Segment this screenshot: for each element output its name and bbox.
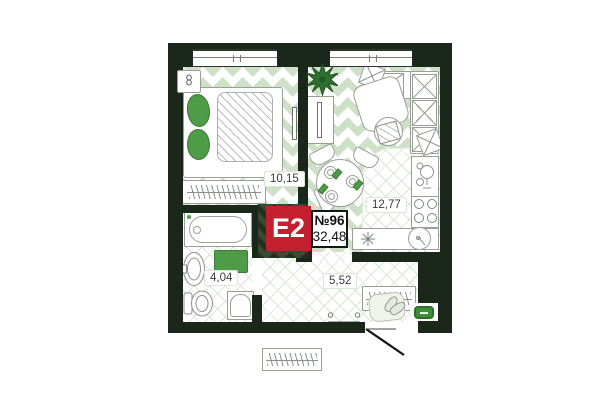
apartment-number: №96 [314, 213, 344, 229]
room-area-label-hallway: 5,52 [323, 273, 357, 289]
living-window [330, 49, 412, 67]
passage-floor-tile [312, 252, 352, 262]
kitchen-sink-icon [414, 160, 436, 194]
living-tv [317, 102, 322, 138]
bathtub [184, 212, 252, 247]
washing-machine [227, 291, 254, 320]
outer-wall-right-lower [418, 262, 452, 333]
room-area-label-kitchen-living: 12,77 [366, 197, 407, 213]
room-area-label-bedroom: 10,15 [264, 171, 305, 187]
layout-code-badge: E2 [266, 206, 311, 251]
round-basin-icon [408, 227, 431, 250]
radiator-squiggle-icon [178, 71, 200, 92]
outer-wall-right [440, 43, 452, 262]
soap-dot [187, 215, 191, 219]
bed-mattress [217, 92, 273, 162]
floor-plan-canvas: 10,15 12,77 4,04 5,52 E2 №96 32,48 [0, 0, 600, 400]
plate [325, 190, 338, 203]
bedroom-window [193, 49, 277, 67]
stove-burners-icon [427, 213, 437, 223]
bedroom-tv [292, 107, 297, 140]
stove-burners-icon [414, 199, 424, 209]
wall-living-hallway [352, 252, 442, 262]
cooktop-star-icon [360, 231, 376, 247]
apartment-info-box: №96 32,48 [311, 210, 348, 248]
stove-burners-icon [427, 199, 437, 209]
wall-bedroom-bathroom [183, 205, 260, 213]
shoe-rug [368, 291, 407, 323]
toilet-icon [183, 288, 214, 319]
hall-wardrobe-bottom [262, 348, 322, 371]
apartment-total-area: 32,48 [313, 229, 347, 245]
room-area-label-bathroom: 4,04 [204, 270, 238, 286]
outer-wall-bottom [168, 322, 365, 333]
sofa-cushion [412, 74, 437, 99]
entry-doormat [414, 306, 434, 319]
wall-bathroom-right-lower [252, 295, 262, 322]
counter-divider [412, 196, 438, 197]
stove-burners-icon [414, 213, 424, 223]
sofa-cushion [412, 100, 437, 126]
plant-icon [306, 63, 339, 96]
bedroom-wardrobe [182, 180, 266, 204]
radiator-box [177, 70, 201, 93]
